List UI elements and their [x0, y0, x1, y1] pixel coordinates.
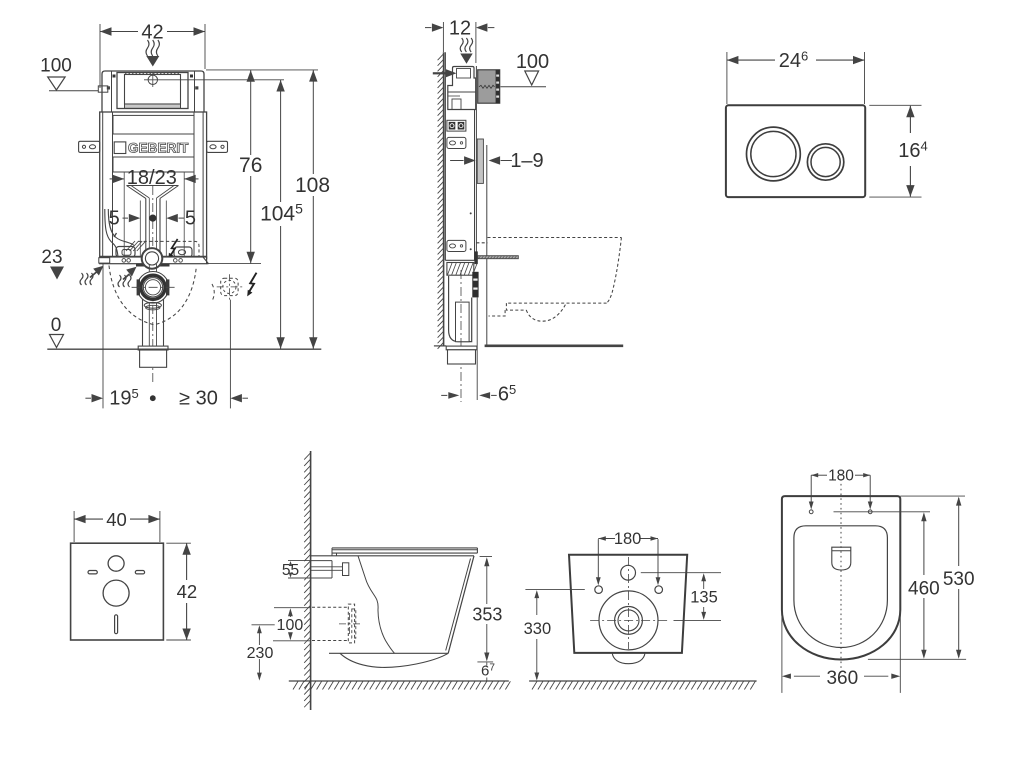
svg-text:0: 0 [51, 315, 62, 336]
svg-text:42: 42 [177, 581, 198, 602]
svg-text:230: 230 [247, 645, 274, 662]
svg-text:GEBERIT: GEBERIT [128, 140, 189, 155]
svg-text:330: 330 [524, 620, 552, 638]
svg-text:135: 135 [690, 589, 718, 607]
svg-text:55: 55 [282, 562, 299, 579]
svg-text:530: 530 [943, 569, 975, 590]
svg-text:353: 353 [472, 605, 502, 625]
svg-text:40: 40 [106, 509, 127, 530]
svg-text:360: 360 [826, 668, 858, 689]
svg-text:180: 180 [614, 530, 642, 548]
svg-text:108: 108 [295, 174, 330, 197]
svg-text:12: 12 [449, 18, 471, 40]
svg-text:100: 100 [40, 56, 72, 77]
svg-text:23: 23 [41, 247, 62, 268]
svg-text:100: 100 [277, 617, 304, 634]
svg-text:460: 460 [908, 578, 940, 599]
svg-text:1–9: 1–9 [510, 150, 543, 172]
svg-text:5: 5 [185, 208, 196, 230]
svg-text:100: 100 [516, 51, 549, 73]
svg-text:≥ 30: ≥ 30 [179, 388, 218, 410]
svg-text:76: 76 [239, 154, 262, 177]
